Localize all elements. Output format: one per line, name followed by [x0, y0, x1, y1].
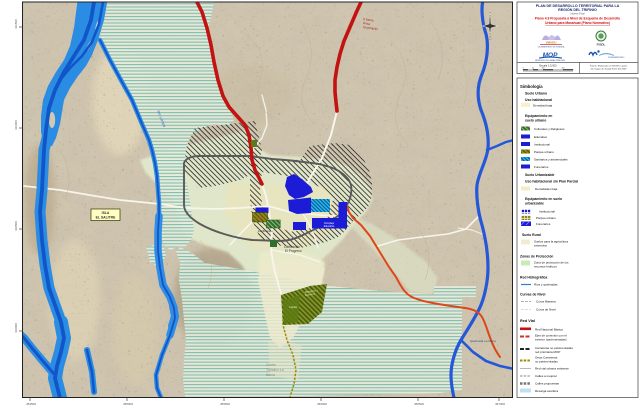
svg-text:Equipamiento en: Equipamiento en — [525, 114, 552, 118]
svg-text:VMVDU: VMVDU — [546, 41, 557, 45]
svg-text:411000: 411000 — [14, 120, 18, 130]
svg-text:Fuente: Elaborado en SIG/GIS a: Fuente: Elaborado en SIG/GIS a partir — [590, 65, 627, 68]
svg-text:EL SALITRE: EL SALITRE — [96, 216, 116, 220]
svg-text:Plano 4.9 Propuesta a Nivel de: Plano 4.9 Propuesta a Nivel de Esquema d… — [535, 17, 620, 21]
svg-text:Parque: Parque — [256, 217, 264, 220]
svg-text:Culturales y Religiosos: Culturales y Religiosos — [534, 127, 565, 131]
svg-text:455000: 455000 — [123, 402, 133, 406]
svg-text:456500: 456500 — [414, 402, 424, 406]
svg-text:Red Hidrográfica: Red Hidrográfica — [520, 276, 547, 280]
svg-text:200: 200 — [562, 68, 565, 70]
svg-text:FISDL: FISDL — [597, 43, 606, 47]
svg-text:410000: 410000 — [14, 323, 18, 333]
svg-text:Recarga acuífera: Recarga acuífera — [535, 389, 558, 393]
svg-text:VICEMINISTERIO: VICEMINISTERIO — [608, 57, 625, 59]
svg-text:REGIÓN DEL TRIFINIO: REGIÓN DEL TRIFINIO — [558, 7, 597, 12]
svg-text:MINISTERIO DE OBRAS PÚBLICAS: MINISTERIO DE OBRAS PÚBLICAS — [535, 59, 565, 62]
svg-text:VICEMINISTERIO DE VIVIENDA: VICEMINISTERIO DE VIVIENDA — [538, 46, 565, 49]
svg-text:Red vial urbana existente: Red vial urbana existente — [535, 367, 569, 371]
svg-text:Funerarios: Funerarios — [534, 165, 549, 169]
svg-text:Uso habitacional sin Plan Parc: Uso habitacional sin Plan Parcial — [525, 180, 578, 184]
svg-text:Equipamiento en suelo: Equipamiento en suelo — [525, 197, 562, 201]
svg-text:Curva de Nivel: Curva de Nivel — [536, 308, 556, 312]
svg-text:Parque urbano: Parque urbano — [534, 150, 554, 154]
svg-text:Urbano para Masahuat (Plano No: Urbano para Masahuat (Plano Normativo) — [545, 21, 610, 25]
svg-text:100: 100 — [542, 68, 545, 70]
svg-text:0: 0 — [523, 68, 524, 70]
svg-text:urbanizable: urbanizable — [525, 202, 544, 206]
svg-text:457000: 457000 — [495, 402, 505, 406]
svg-text:extensiva: extensiva — [534, 244, 547, 248]
svg-text:Turístico La: Turístico La — [266, 368, 284, 372]
svg-text:MOP: MOP — [543, 52, 558, 59]
svg-text:Suelo Urbano: Suelo Urbano — [525, 92, 547, 96]
svg-text:Institucional: Institucional — [534, 143, 550, 147]
svg-text:455500: 455500 — [220, 402, 230, 406]
svg-text:Suelo Rural: Suelo Rural — [522, 233, 541, 237]
svg-text:Lotificación: Lotificación — [258, 229, 273, 233]
svg-text:411500: 411500 — [14, 19, 18, 29]
svg-text:456000: 456000 — [317, 402, 327, 406]
svg-text:ISLA: ISLA — [102, 211, 110, 215]
svg-text:Funerarios: Funerarios — [536, 222, 551, 226]
svg-text:454500: 454500 — [26, 402, 36, 406]
svg-text:Centro: Centro — [266, 363, 276, 367]
svg-text:de imagen de Google Earth del: de imagen de Google Earth del 2005 — [591, 68, 628, 71]
svg-text:Quebrada La Mona: Quebrada La Mona — [470, 339, 496, 343]
svg-text:Calles propuestas: Calles propuestas — [535, 382, 560, 386]
svg-text:red prioritaria MOP: red prioritaria MOP — [535, 350, 560, 354]
svg-text:Institucional: Institucional — [539, 210, 555, 214]
svg-text:recursos hídricos: recursos hídricos — [534, 265, 557, 269]
svg-text:Densidad baja: Densidad baja — [533, 104, 553, 108]
svg-text:Capilla: Capilla — [289, 305, 297, 309]
svg-text:no pavimentadas: no pavimentadas — [535, 360, 558, 364]
svg-text:Informe Final: Informe Final — [571, 13, 585, 16]
svg-text:suelo urbano: suelo urbano — [525, 119, 546, 123]
svg-text:Densidades baja: Densidades baja — [535, 187, 558, 191]
svg-text:Sanitarios y asistenciales: Sanitarios y asistenciales — [534, 158, 568, 162]
svg-text:Curva Maestra: Curva Maestra — [536, 300, 556, 304]
svg-text:Red Nacional Básica: Red Nacional Básica — [535, 328, 563, 332]
svg-text:El Progreso: El Progreso — [285, 249, 302, 253]
svg-text:Barca: Barca — [266, 373, 275, 377]
svg-text:Uso habitacional: Uso habitacional — [525, 98, 552, 102]
svg-text:50: 50 — [532, 68, 534, 70]
svg-text:Suelo Urbanizable: Suelo Urbanizable — [525, 173, 555, 177]
svg-text:410500: 410500 — [14, 221, 18, 231]
svg-text:Zonas de Protección: Zonas de Protección — [520, 255, 553, 259]
svg-text:Parque urbano: Parque urbano — [536, 216, 556, 220]
svg-text:Curvas de Nivel: Curvas de Nivel — [520, 293, 545, 297]
svg-text:PLAN DE DESARROLLO TERRITORIA: PLAN DE DESARROLLO TERRITORIAL PARA LA — [536, 4, 620, 8]
svg-text:Educativo: Educativo — [324, 225, 335, 228]
svg-text:exterior (pavimentadas): exterior (pavimentadas) — [535, 338, 567, 342]
svg-text:Educativo: Educativo — [534, 135, 548, 139]
svg-text:Ríos y quebradas: Ríos y quebradas — [534, 283, 558, 287]
svg-text:Simbología: Simbología — [520, 84, 543, 89]
svg-text:Red Vial: Red Vial — [520, 319, 535, 323]
svg-text:Calles a mejorar: Calles a mejorar — [535, 374, 557, 378]
